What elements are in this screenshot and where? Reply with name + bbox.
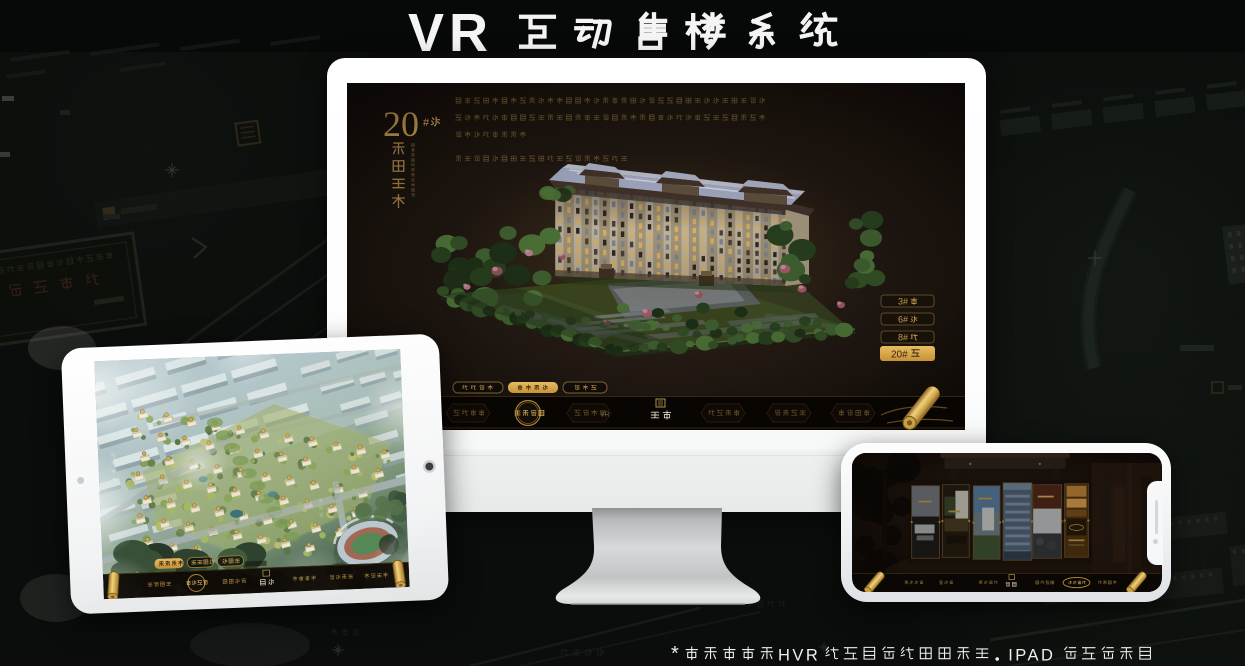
- svg-text:IPAD: IPAD: [1008, 647, 1055, 665]
- svg-text:*: *: [671, 643, 679, 665]
- svg-text:HVR: HVR: [778, 647, 820, 665]
